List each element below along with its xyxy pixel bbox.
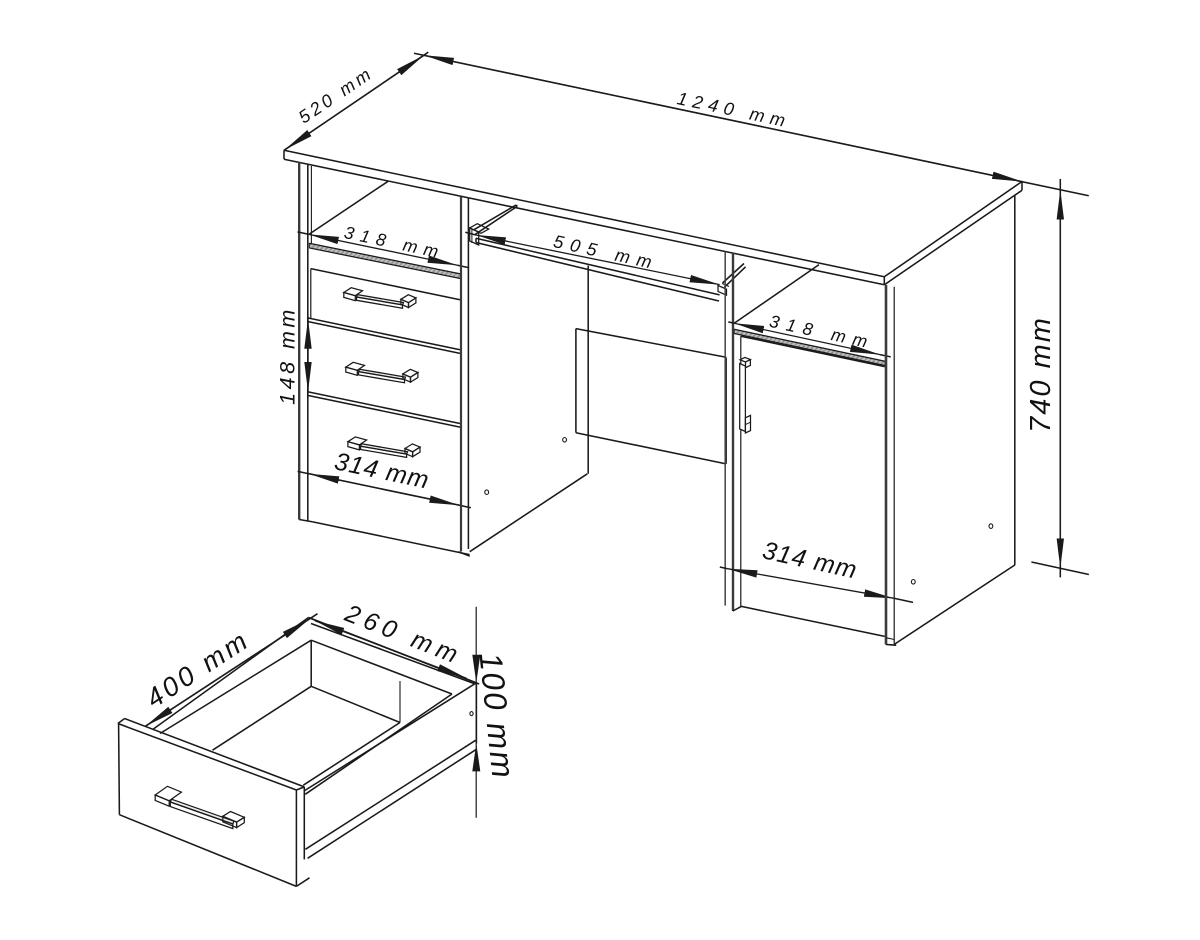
svg-text:148 mm: 148 mm: [275, 306, 299, 405]
svg-text:740 mm: 740 mm: [1025, 316, 1057, 433]
